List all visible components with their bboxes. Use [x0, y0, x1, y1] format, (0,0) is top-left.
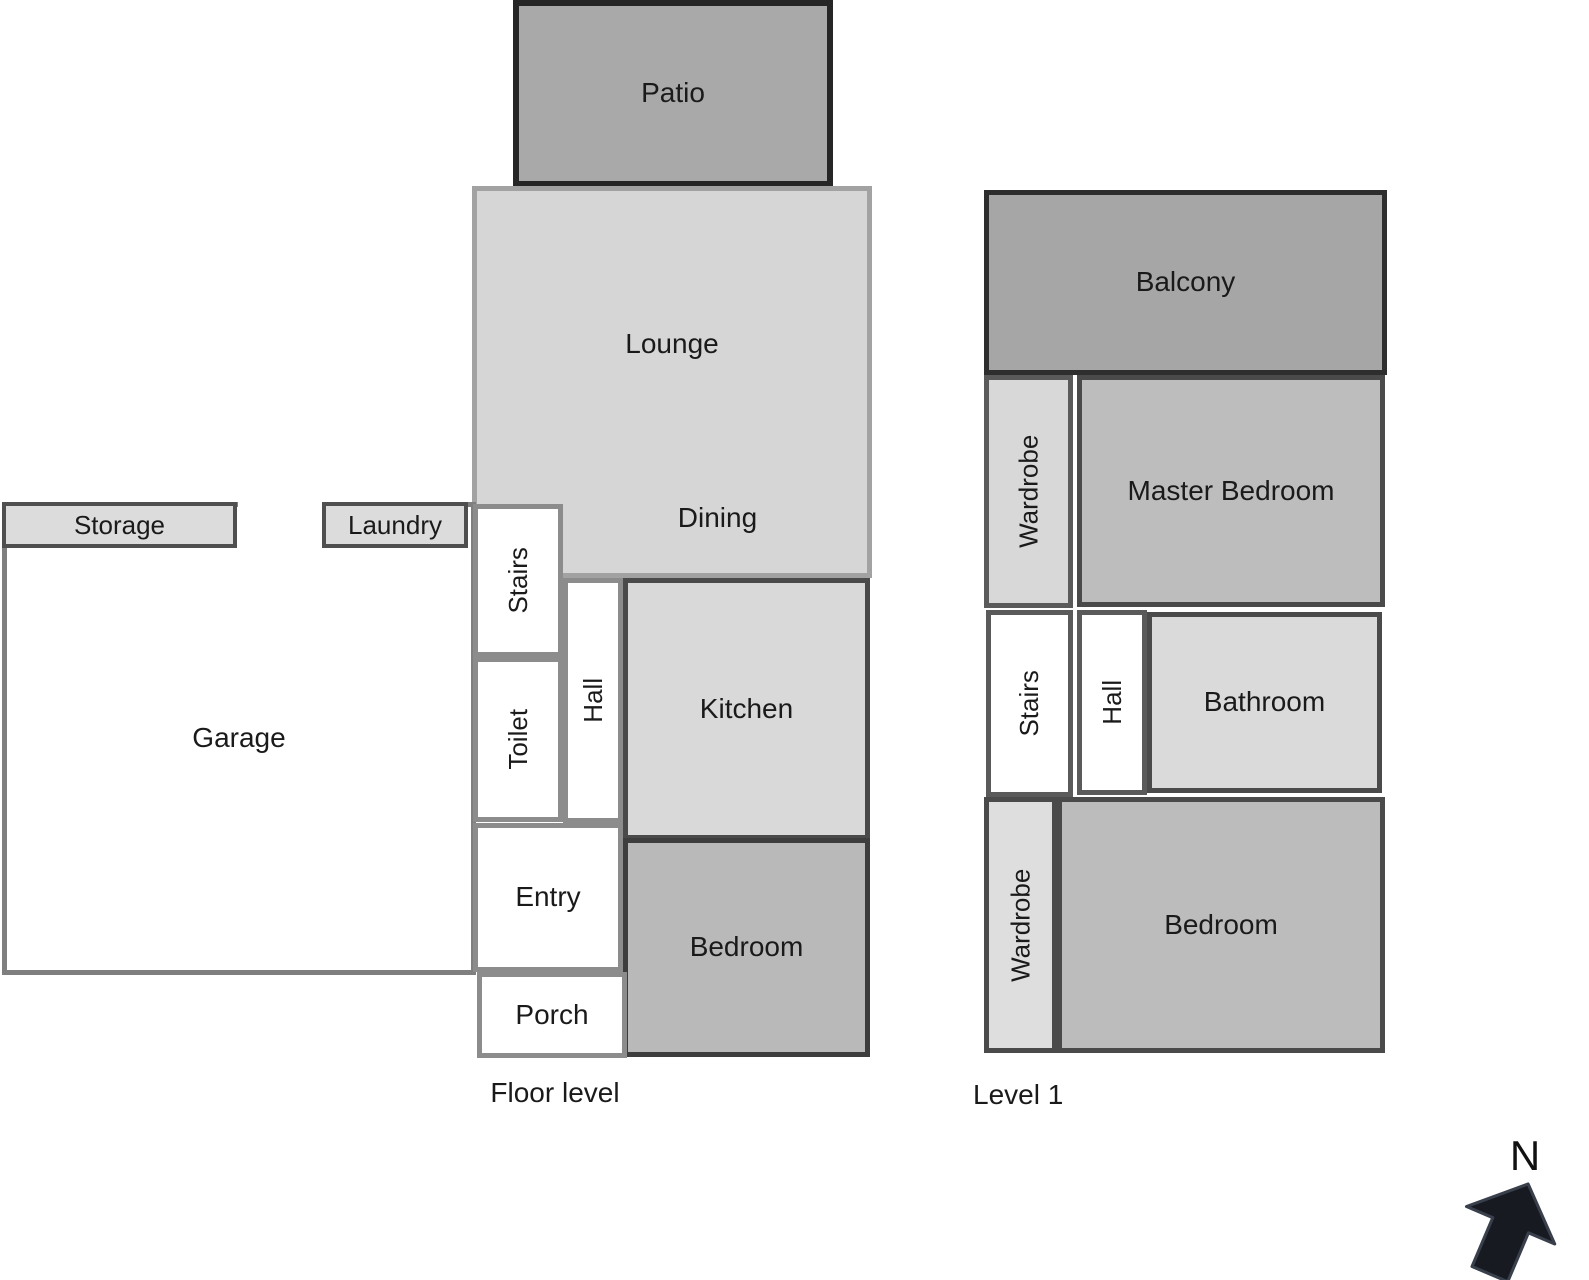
north-label: N: [1495, 1132, 1555, 1180]
floor-plan-canvas: Patio Lounge Dining Garage Storage Laund…: [0, 0, 1589, 1280]
room-bedroom-level1: Bedroom: [1057, 797, 1385, 1053]
wardrobe-bottom-label: Wardrobe: [1006, 868, 1035, 981]
wardrobe-top-label: Wardrobe: [1014, 435, 1043, 548]
room-wardrobe-top: Wardrobe: [984, 375, 1073, 608]
room-bathroom: Bathroom: [1147, 612, 1382, 793]
room-hall-level1: Hall: [1077, 610, 1147, 795]
room-wardrobe-bottom: Wardrobe: [984, 797, 1057, 1053]
room-balcony: Balcony: [984, 190, 1387, 375]
level-1-caption: Level 1: [973, 1079, 1063, 1111]
hall-level1-label: Hall: [1098, 680, 1127, 725]
level-1-plan: Balcony Wardrobe Master Bedroom Stairs H…: [0, 0, 1589, 1280]
balcony-label: Balcony: [1136, 267, 1236, 298]
bathroom-label: Bathroom: [1204, 687, 1325, 718]
bedroom-level1-label: Bedroom: [1164, 910, 1278, 941]
stairs-level1-label: Stairs: [1015, 670, 1044, 736]
room-stairs-level1: Stairs: [986, 610, 1073, 797]
north-arrow-icon: [1455, 1178, 1563, 1280]
room-master-bedroom: Master Bedroom: [1077, 375, 1385, 607]
master-bedroom-label: Master Bedroom: [1128, 476, 1335, 507]
